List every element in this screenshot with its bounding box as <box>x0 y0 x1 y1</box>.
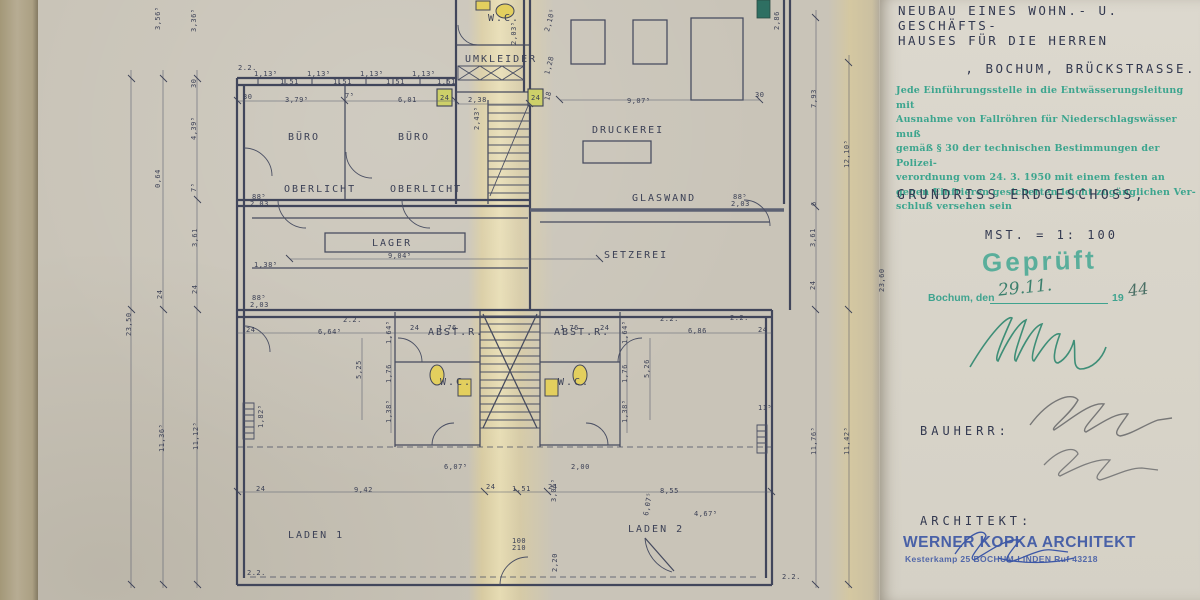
approval-year: 19 <box>1112 292 1124 304</box>
regulation-line: Ausnahme von Fallröhren für Niederschlag… <box>896 113 1198 142</box>
regulation-line: Jede Einführungsstelle in die Entwässeru… <box>896 84 1198 113</box>
approval-city: Bochum, den <box>928 292 995 304</box>
gepruft-stamp: Geprüft <box>982 245 1098 279</box>
architect-stamp-name: WERNER KOPKA ARCHITEKT <box>903 534 1136 552</box>
project-title-line3: , BOCHUM, BRÜCKSTRASSE. <box>898 61 1196 76</box>
architect-stamp-address: Kesterkamp 25 BOCHUM-LINDEN Ruf 43218 <box>905 554 1098 564</box>
bauherr-label: BAUHERR: <box>920 424 1010 438</box>
regulation-line: gemäß § 30 der technischen Bestimmungen … <box>896 142 1198 171</box>
scale-label: MST. = 1: 100 <box>985 228 1118 242</box>
project-title-line1: NEUBAU EINES WOHN.- U. GESCHÄFTS- <box>898 3 1198 33</box>
date-underline <box>990 302 1108 304</box>
approval-year-handwritten: 44 <box>1127 279 1150 301</box>
blueprint-photo: BÜROBÜROW.C.UMKLEIDERDRUCKEREIGLASWANDOB… <box>0 0 1200 600</box>
paper-edge <box>0 0 39 600</box>
drawing-title: GRUNDRISS ERDGESCHOSS, <box>897 188 1146 203</box>
architekt-label: ARCHITEKT: <box>920 514 1032 528</box>
plan-sheet <box>38 0 880 600</box>
project-title-line2: HAUSES FÜR DIE HERREN <box>898 33 1198 48</box>
regulation-line: verordnung vom 24. 3. 1950 mit einem fes… <box>896 171 1198 186</box>
